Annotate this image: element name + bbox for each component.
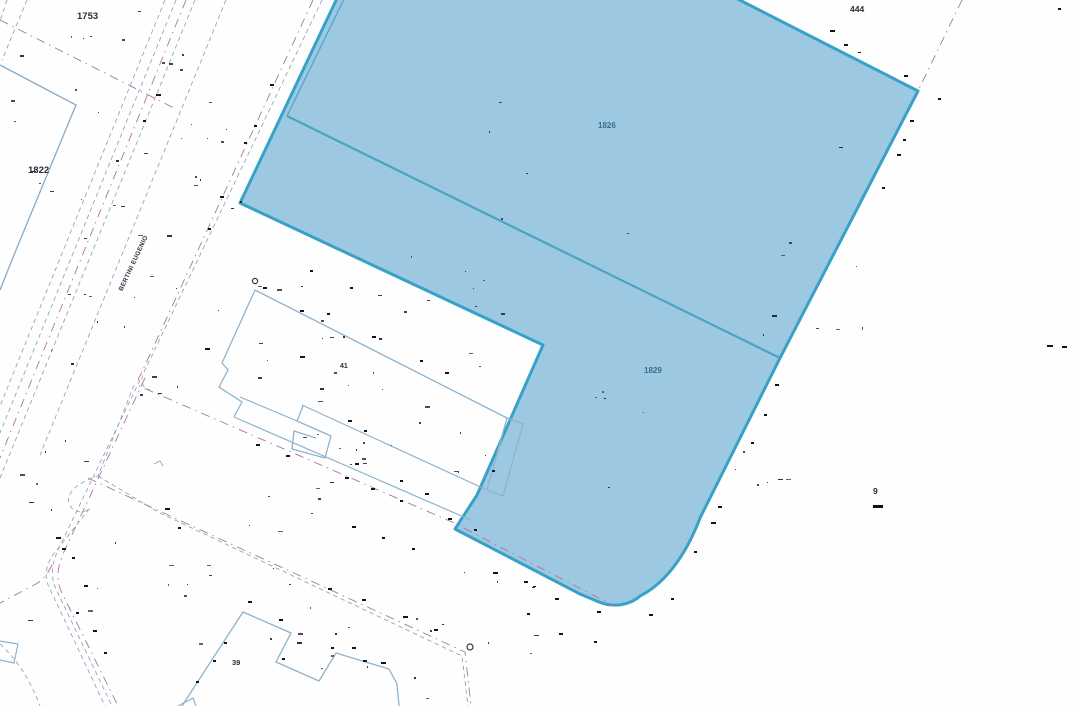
svg-text:1826: 1826 [598, 121, 616, 130]
svg-text:1829: 1829 [644, 366, 662, 375]
svg-text:41: 41 [340, 363, 348, 370]
svg-text:9: 9 [873, 486, 878, 496]
svg-text:1753: 1753 [77, 11, 98, 22]
svg-text:444: 444 [850, 4, 864, 14]
svg-text:39: 39 [232, 658, 240, 667]
svg-text:1822: 1822 [28, 165, 49, 176]
